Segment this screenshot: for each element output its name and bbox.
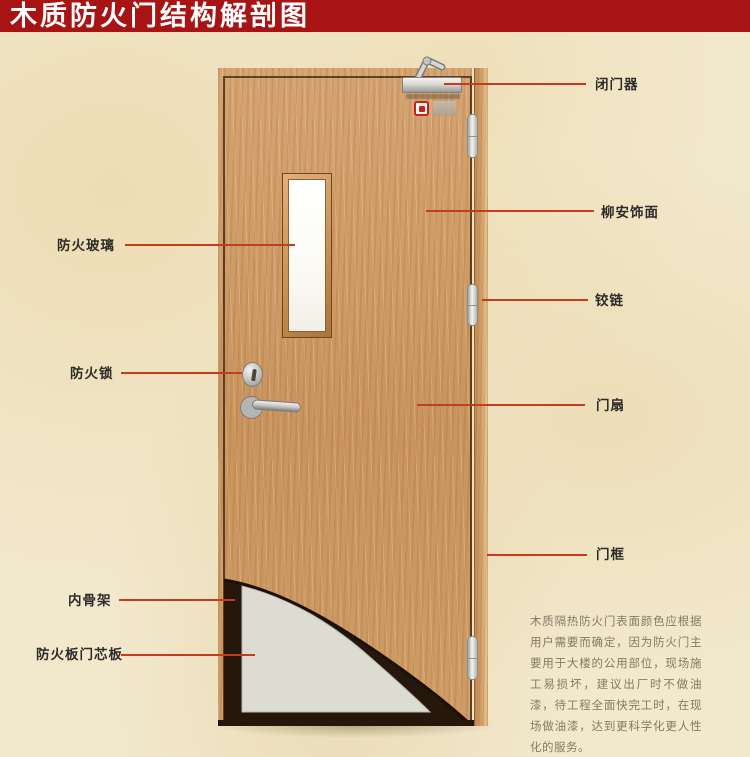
leader-line-lauan-veneer bbox=[426, 210, 594, 212]
label-hinge: 铰链 bbox=[595, 294, 624, 308]
door-bottom-edge bbox=[218, 720, 474, 726]
label-door-leaf: 门扇 bbox=[596, 399, 625, 413]
cutaway-section bbox=[218, 68, 488, 726]
leader-line-core-panel bbox=[121, 654, 255, 656]
leader-line-door-closer bbox=[444, 83, 586, 85]
product-description: 木质隔热防火门表面颜色应根据用户需要而确定，因为防火门主要用于大楼的公用部位，现… bbox=[530, 612, 702, 757]
leader-line-door-frame bbox=[487, 554, 587, 556]
core-panel-layer bbox=[242, 586, 430, 712]
leader-line-inner-skeleton bbox=[119, 599, 235, 601]
label-core-panel: 防火板门芯板 bbox=[36, 648, 123, 662]
page-title: 木质防火门结构解剖图 bbox=[0, 3, 310, 30]
label-inner-skeleton: 内骨架 bbox=[68, 594, 112, 608]
label-door-frame: 门框 bbox=[596, 548, 625, 562]
label-fireproof-lock: 防火锁 bbox=[70, 367, 114, 381]
leader-line-fireproof-lock bbox=[121, 372, 242, 374]
title-banner: 木质防火门结构解剖图 bbox=[0, 0, 750, 32]
leader-line-door-leaf bbox=[417, 404, 585, 406]
leader-line-fireproof-glass bbox=[125, 244, 295, 246]
leader-line-hinge bbox=[482, 299, 588, 301]
label-fireproof-glass: 防火玻璃 bbox=[57, 239, 115, 253]
label-door-closer: 闭门器 bbox=[595, 78, 639, 92]
fire-door-illustration bbox=[218, 68, 488, 726]
diagram-canvas: 木质防火门结构解剖图 bbox=[0, 0, 750, 757]
label-lauan-veneer: 柳安饰面 bbox=[601, 206, 659, 220]
